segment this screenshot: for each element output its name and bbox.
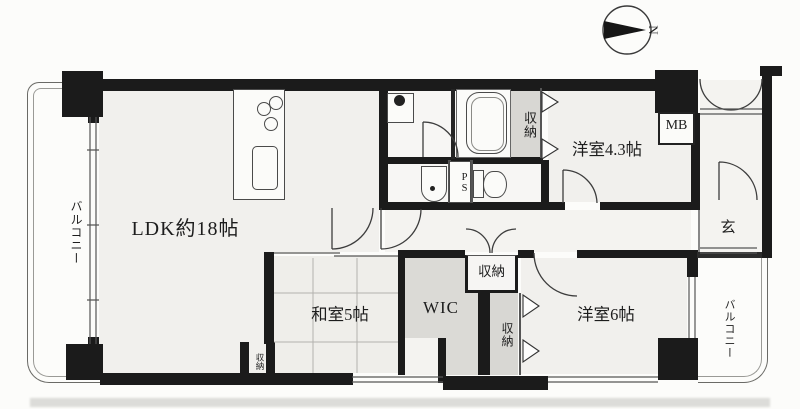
label-closet-bedroom6: 収納 [493,310,513,360]
wall-jr-closet-right [266,342,275,376]
wall-toilet-east [541,160,549,210]
wall-bedroom6-east-bottom [687,338,698,346]
label-closet-japanese-room: 収納 [250,346,264,376]
label-balcony-left: バルコニー [60,186,82,278]
column-top-left [62,71,103,117]
stove-burner-icon [264,117,278,131]
floor-plan: N LDK約18帖 和室5帖 WIC 洋室4.3帖 洋室6帖 玄 バルコニー バ… [0,0,800,409]
window-west-cap-top [88,115,99,123]
column-top-right-mid [655,70,698,113]
label-japanese-room: 和室5帖 [292,306,388,323]
closet-43-front-line [540,88,542,158]
toilet-bowl-icon [483,171,507,198]
wall-entrance-balcony-divider [697,252,762,258]
entrance-step-line-vertical [698,210,700,252]
label-pipe-shaft: PS [450,166,470,200]
wall-bedrooms-north-b [518,250,534,258]
window-west-cap-bottom [88,337,99,345]
wall-corridor-north-west [385,202,565,210]
label-ldk: LDK約18帖 [103,219,268,240]
compass-circle [603,6,651,54]
label-western-room-6: 洋室6帖 [558,306,654,323]
column-bottom-left [66,344,103,380]
wall-right [762,68,772,258]
label-closet-bathroom: 収納 [515,100,536,150]
label-entrance: 玄 [717,221,739,237]
label-western-room-43: 洋室4.3帖 [543,141,671,158]
wall-top [95,79,657,91]
closet-6-front-line [519,293,521,375]
washbasin-drain-dot [430,186,435,191]
wall-wic-notch-east [438,338,446,383]
wall-wic-east [478,290,490,375]
washer-faucet-icon [394,95,405,106]
label-closet-hallway: 収納 [466,265,517,279]
wall-laundry-bath [451,89,455,159]
wall-japanese-room-west [264,252,274,344]
compass: N [603,6,661,54]
window-south-bedroom6 [548,377,658,382]
stove-burner-icon [269,96,283,110]
wall-bottom-middle [443,376,548,390]
wall-jr-closet-left [240,342,249,376]
window-east-bedroom6 [689,277,695,338]
window-south-japanese-room [352,377,400,382]
label-meter-box: MB [659,119,694,134]
wall-wic-west [398,256,405,375]
window-south-wic [400,377,443,382]
washbasin-icon [421,166,447,202]
compass-needle-icon [604,21,646,39]
corridor-area [385,210,691,252]
wall-bottom-west [100,373,353,385]
wall-bedrooms-north-c [577,250,693,258]
bathtub-inner-line [471,97,504,151]
label-wic: WIC [417,299,465,317]
wall-corridor-north-east [600,202,693,210]
label-balcony-right: バルコニー [714,290,734,368]
kitchen-sink-icon [252,146,278,190]
scan-artifact-band [30,398,770,407]
compass-north-label: N [646,25,661,35]
wall-bedrooms-north-a [398,250,465,258]
